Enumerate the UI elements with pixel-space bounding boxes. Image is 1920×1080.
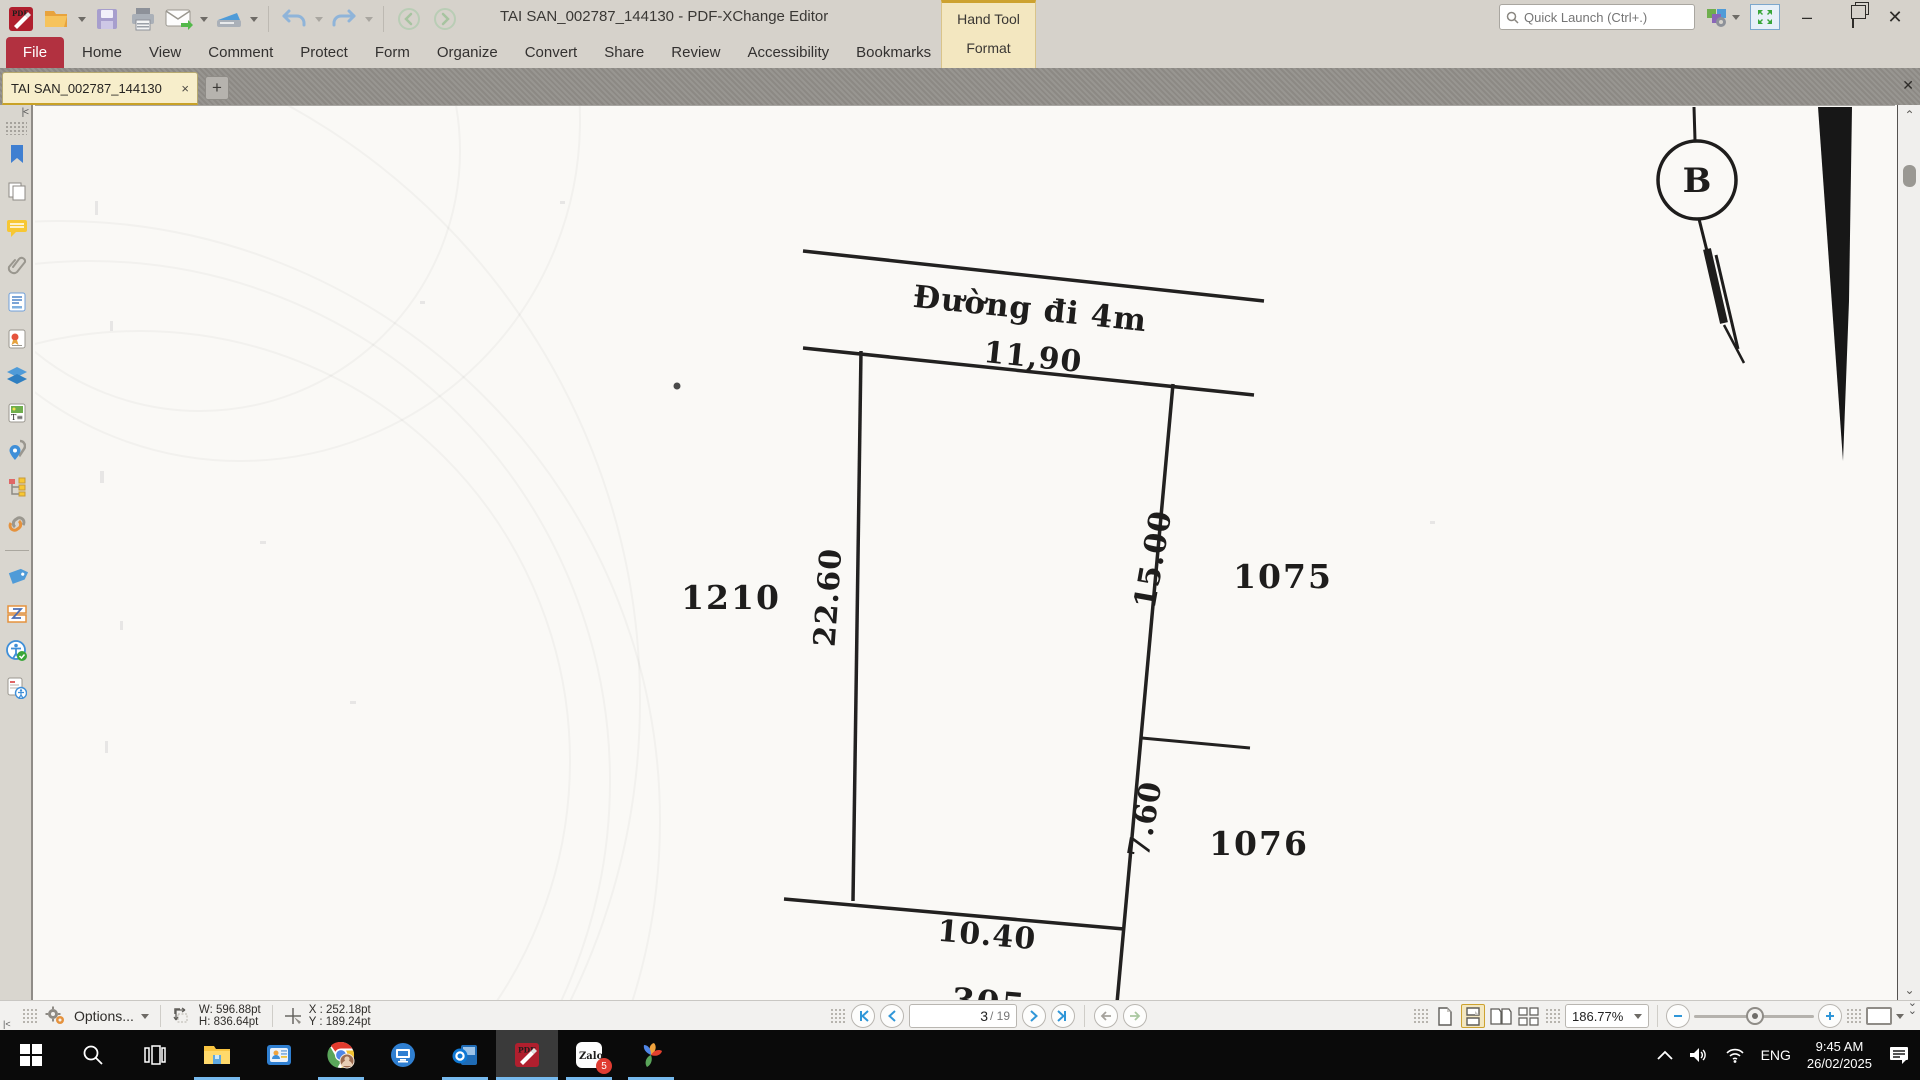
remote-desktop-button[interactable] <box>372 1030 434 1080</box>
zoom-level-select[interactable]: 186.77% <box>1565 1004 1649 1028</box>
fit-chevron[interactable] <box>1896 1014 1904 1019</box>
comments-pane-icon[interactable] <box>6 217 28 239</box>
accessibility-report-pane-icon[interactable] <box>6 677 28 699</box>
fit-width-button[interactable] <box>1866 1007 1892 1025</box>
page-number-input[interactable] <box>928 1008 988 1024</box>
zoom-drag-handle[interactable] <box>1545 1008 1561 1024</box>
language-indicator[interactable]: ENG <box>1761 1047 1791 1063</box>
print-button[interactable] <box>128 5 158 33</box>
options-chevron[interactable] <box>141 1014 149 1019</box>
hand-tool-label: Hand Tool <box>942 11 1035 27</box>
options-button[interactable]: Options... <box>74 1008 134 1024</box>
quick-launch-box[interactable] <box>1499 4 1695 30</box>
thumbnails-pane-icon[interactable] <box>6 180 28 202</box>
document-tab-bar: TAI SAN_002787_144130 × + ✕ <box>0 68 1920 105</box>
viewmode-drag-handle[interactable] <box>1413 1008 1429 1024</box>
dim-bottom-cut: 305 <box>950 980 1028 1000</box>
links-pane-icon[interactable] <box>6 513 28 535</box>
clock-time: 9:45 AM <box>1816 1039 1864 1054</box>
menu-view[interactable]: View <box>149 44 181 61</box>
zoom-in-button[interactable] <box>1818 1004 1842 1028</box>
zoom-slider[interactable] <box>1694 1004 1814 1028</box>
pdf-xchange-taskbar-button[interactable]: PDF <box>496 1030 558 1080</box>
open-file-button[interactable] <box>42 5 72 33</box>
undo-dropdown-chevron[interactable] <box>315 17 323 22</box>
boundary-right <box>1117 384 1173 1000</box>
attachments-pane-icon[interactable] <box>6 254 28 276</box>
single-page-view-button[interactable] <box>1433 1004 1457 1028</box>
dim-bottom: 10.40 <box>936 914 1038 957</box>
task-view-button[interactable] <box>124 1030 186 1080</box>
redo-button[interactable] <box>329 5 359 33</box>
menu-home[interactable]: Home <box>82 44 122 61</box>
cursor-position-icon <box>284 1007 302 1025</box>
statusbar-collapse-icon[interactable]: |< <box>3 1019 11 1029</box>
document-tab[interactable]: TAI SAN_002787_144130 × <box>2 72 198 105</box>
new-tab-button[interactable]: + <box>205 76 229 100</box>
menu-protect[interactable]: Protect <box>300 44 348 61</box>
undo-button[interactable] <box>279 5 309 33</box>
dim-right-lower: 7.60 <box>1122 778 1170 860</box>
tray-chevron-icon[interactable] <box>1657 1050 1673 1060</box>
statusbar-drag-handle[interactable] <box>22 1008 38 1024</box>
workspace: |< T≡ <box>0 105 1920 1000</box>
minimize-button[interactable]: – <box>1790 7 1824 28</box>
scan-noise <box>35 106 660 1000</box>
stray-dot <box>674 383 681 390</box>
history-forward-button[interactable] <box>1123 1004 1147 1028</box>
menu-bookmarks[interactable]: Bookmarks <box>856 44 931 61</box>
sidebar-divider <box>5 550 29 551</box>
zalo-button[interactable]: Zalo 5 <box>558 1030 620 1080</box>
scrollbar-thumb[interactable] <box>1903 165 1916 187</box>
fit-drag-handle[interactable] <box>1846 1008 1862 1024</box>
cadastral-drawing: B Đường đi 4m 11,90 22.60 15.00 7.60 10.… <box>35 106 1895 1000</box>
next-page-button[interactable] <box>1022 1004 1046 1028</box>
window-title: TAI SAN_002787_144130 - PDF-XChange Edit… <box>500 8 800 25</box>
sidebar-collapse-icon[interactable]: |< <box>22 107 28 118</box>
last-page-button[interactable] <box>1051 1004 1075 1028</box>
outlook-button[interactable] <box>434 1030 496 1080</box>
chrome-button[interactable] <box>310 1030 372 1080</box>
taskbar: PDF Zalo 5 ENG 9:45 AM 26/02/2025 <box>0 1030 1920 1080</box>
structure-pane-icon[interactable] <box>6 476 28 498</box>
zalo-notification-badge: 5 <box>596 1058 612 1074</box>
menu-review[interactable]: Review <box>671 44 720 61</box>
people-app-button[interactable] <box>248 1030 310 1080</box>
forward-button[interactable] <box>430 5 460 33</box>
back-button[interactable] <box>394 5 424 33</box>
dim-right-upper: 15.00 <box>1128 508 1180 612</box>
options-gear-icon <box>45 1006 67 1026</box>
zoom-chevron <box>1634 1014 1642 1019</box>
menu-convert[interactable]: Convert <box>525 44 578 61</box>
fullscreen-button[interactable] <box>1750 4 1780 30</box>
signatures-pane-icon[interactable] <box>6 328 28 350</box>
vertical-scrollbar[interactable]: ⌃ ⌄ <box>1897 105 1920 1000</box>
statusbar-expand-icon[interactable]: ⌄⌄ <box>1908 999 1917 1015</box>
scan-dropdown-chevron[interactable] <box>250 17 258 22</box>
action-center-icon[interactable] <box>1888 1045 1910 1065</box>
scroll-down-icon[interactable]: ⌄ <box>1898 983 1920 997</box>
photos-app-button[interactable] <box>620 1030 682 1080</box>
scan-button[interactable] <box>214 5 244 33</box>
two-page-continuous-view-button[interactable] <box>1517 1004 1541 1028</box>
taskbar-clock[interactable]: 9:45 AM 26/02/2025 <box>1807 1038 1872 1072</box>
pagenav-drag-handle[interactable] <box>830 1008 846 1024</box>
zoom-level-value: 186.77% <box>1572 1009 1623 1024</box>
ribbon-tab-hand-tool[interactable]: Hand Tool Format <box>941 0 1036 68</box>
continuous-view-button[interactable] <box>1461 1004 1485 1028</box>
app-logo-icon: PDF <box>6 5 36 33</box>
menu-comment[interactable]: Comment <box>208 44 273 61</box>
redo-dropdown-chevron[interactable] <box>365 17 373 22</box>
menu-accessibility[interactable]: Accessibility <box>747 44 829 61</box>
restore-button[interactable] <box>1834 7 1868 28</box>
document-tab-close-icon[interactable]: × <box>181 81 189 96</box>
tab-bar-close-icon[interactable]: ✕ <box>1902 77 1914 94</box>
svg-text:T≡: T≡ <box>11 413 23 422</box>
parcel-1076: 1076 <box>1209 824 1309 863</box>
status-bar: |< Options... W: 596.88ptH: 836.64pt X :… <box>0 1000 1920 1030</box>
email-button[interactable] <box>164 5 194 33</box>
file-explorer-button[interactable] <box>186 1030 248 1080</box>
start-button[interactable] <box>0 1030 62 1080</box>
previous-page-button[interactable] <box>880 1004 904 1028</box>
save-button[interactable] <box>92 5 122 33</box>
email-dropdown-chevron[interactable] <box>200 17 208 22</box>
fields-pane-icon[interactable] <box>6 291 28 313</box>
layers-pane-icon[interactable] <box>6 365 28 387</box>
marker-b-symbol <box>1658 107 1744 363</box>
two-page-view-button[interactable] <box>1489 1004 1513 1028</box>
first-page-button[interactable] <box>851 1004 875 1028</box>
document-tab-title: TAI SAN_002787_144130 <box>11 81 162 96</box>
page-size-readout: W: 596.88ptH: 836.64pt <box>199 1004 261 1028</box>
scan-artifact-wedge <box>1818 107 1852 461</box>
document-canvas[interactable]: B Đường đi 4m 11,90 22.60 15.00 7.60 10.… <box>35 105 1895 1000</box>
menu-format[interactable]: Format <box>942 40 1035 56</box>
parcel-1075: 1075 <box>1233 557 1333 596</box>
road-label: Đường đi 4m <box>911 279 1148 339</box>
menu-file[interactable]: File <box>6 37 64 68</box>
parcel-1210: 1210 <box>681 578 781 617</box>
destinations-pane-icon[interactable] <box>6 439 28 461</box>
dim-left: 22.60 <box>808 547 850 648</box>
page-size-icon <box>172 1006 192 1026</box>
clock-date: 26/02/2025 <box>1807 1056 1872 1071</box>
dim-top: 11,90 <box>982 335 1084 380</box>
boundary-left <box>853 351 861 901</box>
content-pane-icon[interactable]: T≡ <box>6 402 28 424</box>
open-dropdown-chevron[interactable] <box>78 17 86 22</box>
panes-sidebar: |< T≡ <box>0 105 33 1000</box>
wifi-icon[interactable] <box>1725 1047 1745 1063</box>
page-number-box[interactable]: / 19 <box>909 1004 1017 1028</box>
taskbar-search-button[interactable] <box>62 1030 124 1080</box>
search-icon <box>1506 11 1519 24</box>
pdf-xchange-window: PDF <box>0 0 1920 1080</box>
page-total-label: / 19 <box>990 1009 1010 1023</box>
tags-pane-icon[interactable] <box>6 566 28 588</box>
zoom-out-button[interactable] <box>1666 1004 1690 1028</box>
accessibility-pane-icon[interactable] <box>6 640 28 662</box>
menu-share[interactable]: Share <box>604 44 644 61</box>
scroll-up-icon[interactable]: ⌃ <box>1898 108 1920 122</box>
order-pane-icon[interactable] <box>6 603 28 625</box>
volume-icon[interactable] <box>1689 1047 1709 1063</box>
quick-launch-input[interactable] <box>1524 10 1684 25</box>
system-tray: ENG 9:45 AM 26/02/2025 <box>1657 1030 1920 1080</box>
menu-form[interactable]: Form <box>375 44 410 61</box>
marker-b-label: B <box>1683 161 1712 201</box>
ui-options-icon[interactable] <box>1705 5 1740 29</box>
close-button[interactable]: ✕ <box>1878 7 1912 28</box>
scan-speckle <box>95 201 1435 753</box>
zoom-slider-thumb[interactable] <box>1746 1007 1764 1025</box>
menu-organize[interactable]: Organize <box>437 44 498 61</box>
history-back-button[interactable] <box>1094 1004 1118 1028</box>
bookmarks-pane-icon[interactable] <box>6 143 28 165</box>
divider-tick <box>1142 738 1250 748</box>
sidebar-drag-handle[interactable] <box>5 121 27 135</box>
cursor-position-readout: X : 252.18ptY : 189.24pt <box>309 1004 371 1028</box>
